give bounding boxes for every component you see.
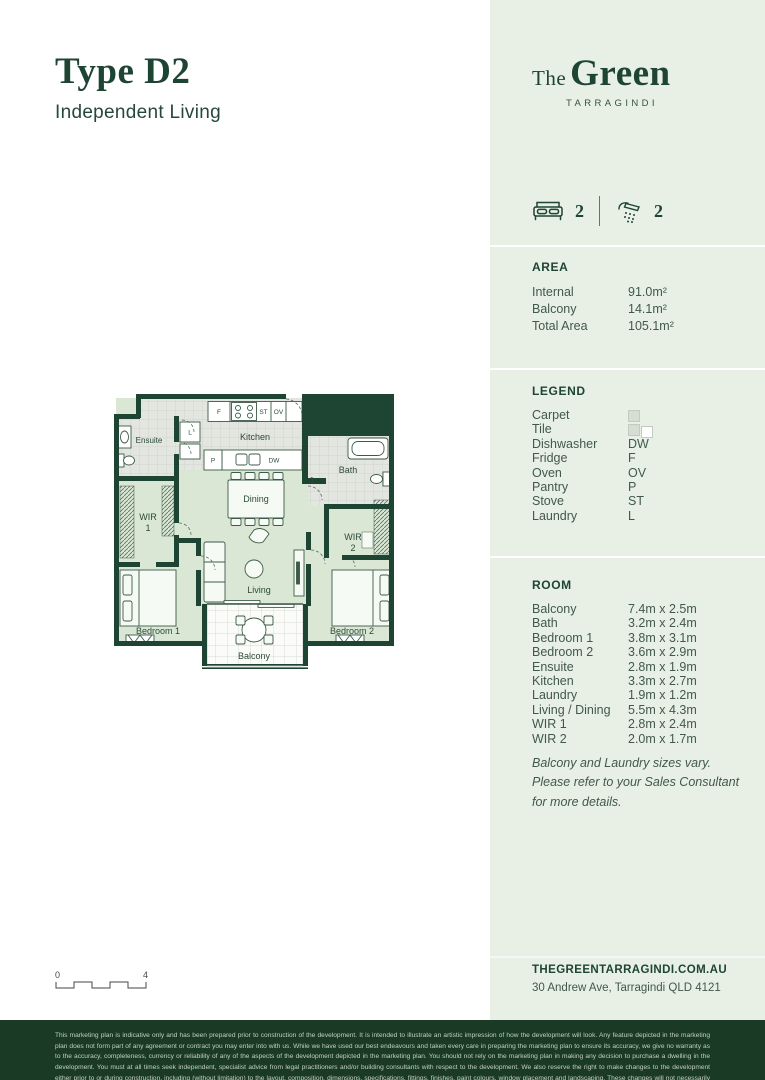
room-row: Living / Dining 5.5m x 4.3m: [532, 703, 732, 717]
legend-row: Carpet: [532, 408, 732, 422]
area-row: Total Area 105.1m²: [532, 318, 732, 335]
section-divider: [490, 556, 765, 558]
wir1-number: 1: [145, 523, 150, 533]
wir2-label: WIR: [344, 532, 362, 542]
bed-icon: [532, 199, 564, 223]
section-divider: [490, 245, 765, 247]
legend-row-value: L: [628, 509, 732, 523]
legend-row-label: Tile: [532, 422, 628, 436]
balcony-label: Balcony: [238, 651, 271, 661]
legend-row-label: Dishwasher: [532, 437, 628, 451]
room-row-value: 2.0m x 1.7m: [628, 732, 732, 746]
dining-label: Dining: [243, 494, 269, 504]
title-block: Type D2 Independent Living: [55, 50, 221, 124]
area-heading: AREA: [532, 260, 732, 274]
area-row-value: 91.0m²: [628, 284, 732, 301]
scale-bar: 0 4: [53, 968, 153, 1001]
legend-row-label: Carpet: [532, 408, 628, 422]
laundry-label: L: [188, 430, 192, 437]
page-title: Type D2: [55, 50, 221, 93]
kitchen-label: Kitchen: [240, 432, 270, 442]
area-row-label: Balcony: [532, 301, 628, 318]
room-row-value: 1.9m x 1.2m: [628, 688, 732, 702]
area-row: Balcony 14.1m²: [532, 301, 732, 318]
room-row-label: WIR 2: [532, 732, 628, 746]
room-row-label: Bedroom 1: [532, 631, 628, 645]
disclaimer-text: This marketing plan is indicative only a…: [55, 1031, 710, 1080]
sidebar: The Green TARRAGINDI 2: [490, 0, 765, 1020]
legend-row-label: Laundry: [532, 509, 628, 523]
bedroom1-label: Bedroom 1: [136, 626, 180, 636]
legend-row-label: Oven: [532, 466, 628, 480]
pantry-label: P: [211, 458, 215, 465]
legend-row: Stove ST: [532, 494, 732, 508]
room-row-label: Balcony: [532, 602, 628, 616]
bath-count: 2: [654, 201, 663, 222]
stove-label: ST: [259, 409, 267, 416]
legend-row: Pantry P: [532, 480, 732, 494]
room-row: Ensuite 2.8m x 1.9m: [532, 660, 732, 674]
bed-count: 2: [575, 201, 584, 222]
bedroom2-label: Bedroom 2: [330, 626, 374, 636]
living-label: Living: [247, 585, 271, 595]
room-row-value: 5.5m x 4.3m: [628, 703, 732, 717]
area-row-label: Internal: [532, 284, 628, 301]
legend-section: LEGEND Carpet Tile Dishwasher DW Fridge …: [532, 384, 732, 523]
scale-start-label: 0: [55, 970, 60, 980]
wir2-number: 2: [350, 543, 355, 553]
tile-swatch: [628, 424, 640, 436]
sizes-note: Balcony and Laundry sizes vary. Please r…: [532, 754, 750, 812]
marketing-plan-page: Type D2 Independent Living: [0, 0, 765, 1080]
stats-divider: [599, 196, 600, 226]
room-row: WIR 1 2.8m x 2.4m: [532, 717, 732, 731]
room-row-value: 3.3m x 2.7m: [628, 674, 732, 688]
legend-row-value: ST: [628, 494, 732, 508]
brand-prefix: The: [532, 66, 566, 90]
floorplan: Kitchen Dining Living Balcony Bedroom 1 …: [112, 392, 396, 682]
room-row-label: Living / Dining: [532, 703, 628, 717]
brand-logo: The Green TARRAGINDI: [532, 52, 692, 109]
address-text: 30 Andrew Ave, Tarragindi QLD 4121: [532, 982, 752, 994]
room-row: Balcony 7.4m x 2.5m: [532, 602, 732, 616]
room-row-value: 3.8m x 3.1m: [628, 631, 732, 645]
brand-name: Green: [570, 53, 670, 94]
legend-row-value: F: [628, 451, 732, 465]
legend-row-value: P: [628, 480, 732, 494]
room-row: Kitchen 3.3m x 2.7m: [532, 674, 732, 688]
footer-bar: This marketing plan is indicative only a…: [0, 1020, 765, 1080]
room-row-label: WIR 1: [532, 717, 628, 731]
contact-block: THEGREENTARRAGINDI.COM.AU 30 Andrew Ave,…: [532, 964, 752, 994]
room-row: Bedroom 1 3.8m x 3.1m: [532, 631, 732, 645]
room-row: Laundry 1.9m x 1.2m: [532, 688, 732, 702]
legend-row: Tile: [532, 422, 732, 436]
bath-label: Bath: [339, 465, 358, 475]
room-row-label: Bath: [532, 616, 628, 630]
legend-row: Fridge F: [532, 451, 732, 465]
ensuite-label: Ensuite: [136, 436, 163, 445]
grid-note-label: 1: [310, 476, 315, 485]
legend-row: Dishwasher DW: [532, 437, 732, 451]
legend-heading: LEGEND: [532, 384, 732, 398]
room-row-value: 3.2m x 2.4m: [628, 616, 732, 630]
scale-bar-line: [56, 982, 146, 988]
room-row: Bath 3.2m x 2.4m: [532, 616, 732, 630]
legend-row-value: OV: [628, 466, 732, 480]
room-row-label: Laundry: [532, 688, 628, 702]
legend-row-value: DW: [628, 437, 732, 451]
area-row-value: 14.1m²: [628, 301, 732, 318]
room-row-value: 7.4m x 2.5m: [628, 602, 732, 616]
area-row-label: Total Area: [532, 318, 628, 335]
area-row: Internal 91.0m²: [532, 284, 732, 301]
room-row: Bedroom 2 3.6m x 2.9m: [532, 645, 732, 659]
legend-row: Oven OV: [532, 466, 732, 480]
room-heading: ROOM: [532, 578, 732, 592]
page-subtitle: Independent Living: [55, 102, 221, 124]
room-row-label: Kitchen: [532, 674, 628, 688]
legend-row-label: Fridge: [532, 451, 628, 465]
legend-row: Laundry L: [532, 509, 732, 523]
room-row-value: 3.6m x 2.9m: [628, 645, 732, 659]
area-section: AREA Internal 91.0m² Balcony 14.1m² Tota…: [532, 260, 732, 335]
scale-end-label: 4: [143, 970, 148, 980]
room-row: WIR 2 2.0m x 1.7m: [532, 732, 732, 746]
room-row-label: Bedroom 2: [532, 645, 628, 659]
room-row-label: Ensuite: [532, 660, 628, 674]
carpet-swatch: [628, 410, 640, 422]
shower-icon: [615, 199, 643, 223]
oven-label: OV: [274, 409, 284, 416]
tile-swatch-white: [641, 426, 653, 438]
legend-row-label: Stove: [532, 494, 628, 508]
section-divider: [490, 956, 765, 958]
section-divider: [490, 368, 765, 370]
brand-location: TARRAGINDI: [532, 98, 692, 109]
wir1-label: WIR: [139, 512, 157, 522]
dishwasher-label: DW: [269, 458, 281, 465]
room-section: ROOM Balcony 7.4m x 2.5m Bath 3.2m x 2.4…: [532, 578, 732, 746]
bed-bath-stats: 2 2: [532, 196, 663, 226]
legend-row-label: Pantry: [532, 480, 628, 494]
room-row-value: 2.8m x 1.9m: [628, 660, 732, 674]
website-text: THEGREENTARRAGINDI.COM.AU: [532, 964, 752, 976]
area-row-value: 105.1m²: [628, 318, 732, 335]
room-row-value: 2.8m x 2.4m: [628, 717, 732, 731]
fridge-label: F: [217, 409, 221, 416]
